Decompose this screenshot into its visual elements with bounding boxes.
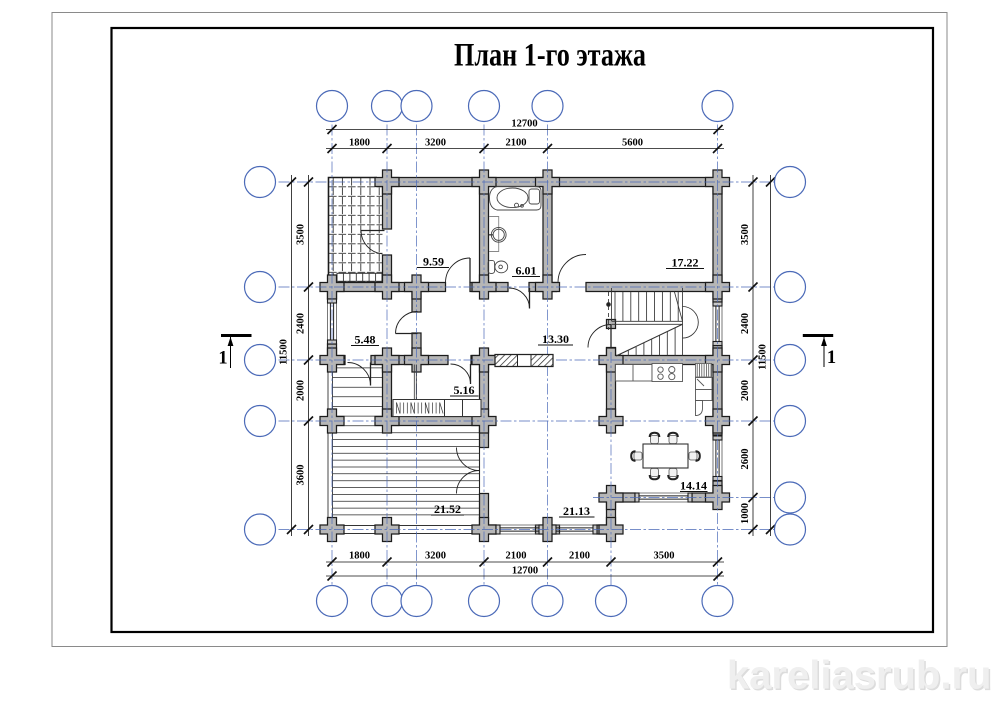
svg-text:2100: 2100 [506, 138, 527, 149]
svg-text:13.30: 13.30 [542, 332, 569, 346]
svg-text:5600: 5600 [622, 138, 643, 149]
svg-text:2000: 2000 [296, 380, 307, 401]
svg-text:1800: 1800 [349, 551, 370, 562]
svg-text:3200: 3200 [425, 551, 446, 562]
svg-text:6.01: 6.01 [516, 264, 537, 278]
svg-text:12700: 12700 [512, 566, 538, 577]
svg-text:3500: 3500 [654, 551, 675, 562]
svg-text:1: 1 [218, 349, 227, 369]
svg-text:2100: 2100 [506, 551, 527, 562]
svg-text:17.22: 17.22 [672, 256, 699, 270]
svg-text:3600: 3600 [296, 465, 307, 486]
svg-text:2400: 2400 [740, 313, 751, 334]
svg-text:План 1-го этажа: План 1-го этажа [454, 38, 646, 74]
svg-text:1: 1 [827, 348, 836, 368]
svg-text:5.48: 5.48 [355, 333, 376, 347]
svg-text:3200: 3200 [425, 138, 446, 149]
svg-text:21.52: 21.52 [434, 502, 461, 516]
svg-text:2100: 2100 [569, 551, 590, 562]
svg-text:3500: 3500 [740, 224, 751, 245]
svg-text:3500: 3500 [296, 224, 307, 245]
svg-text:2400: 2400 [296, 313, 307, 334]
svg-text:kareliasrub.ru: kareliasrub.ru [727, 654, 992, 698]
svg-text:14.14: 14.14 [680, 479, 707, 493]
svg-text:2600: 2600 [740, 449, 751, 470]
svg-text:5.16: 5.16 [454, 383, 475, 397]
svg-text:1000: 1000 [740, 503, 751, 524]
svg-text:11500: 11500 [758, 344, 769, 370]
svg-text:2000: 2000 [740, 380, 751, 401]
svg-text:12700: 12700 [511, 119, 537, 130]
svg-text:11500: 11500 [279, 339, 290, 365]
svg-text:1800: 1800 [349, 138, 370, 149]
svg-text:21.13: 21.13 [563, 504, 590, 518]
svg-text:9.59: 9.59 [423, 255, 444, 269]
